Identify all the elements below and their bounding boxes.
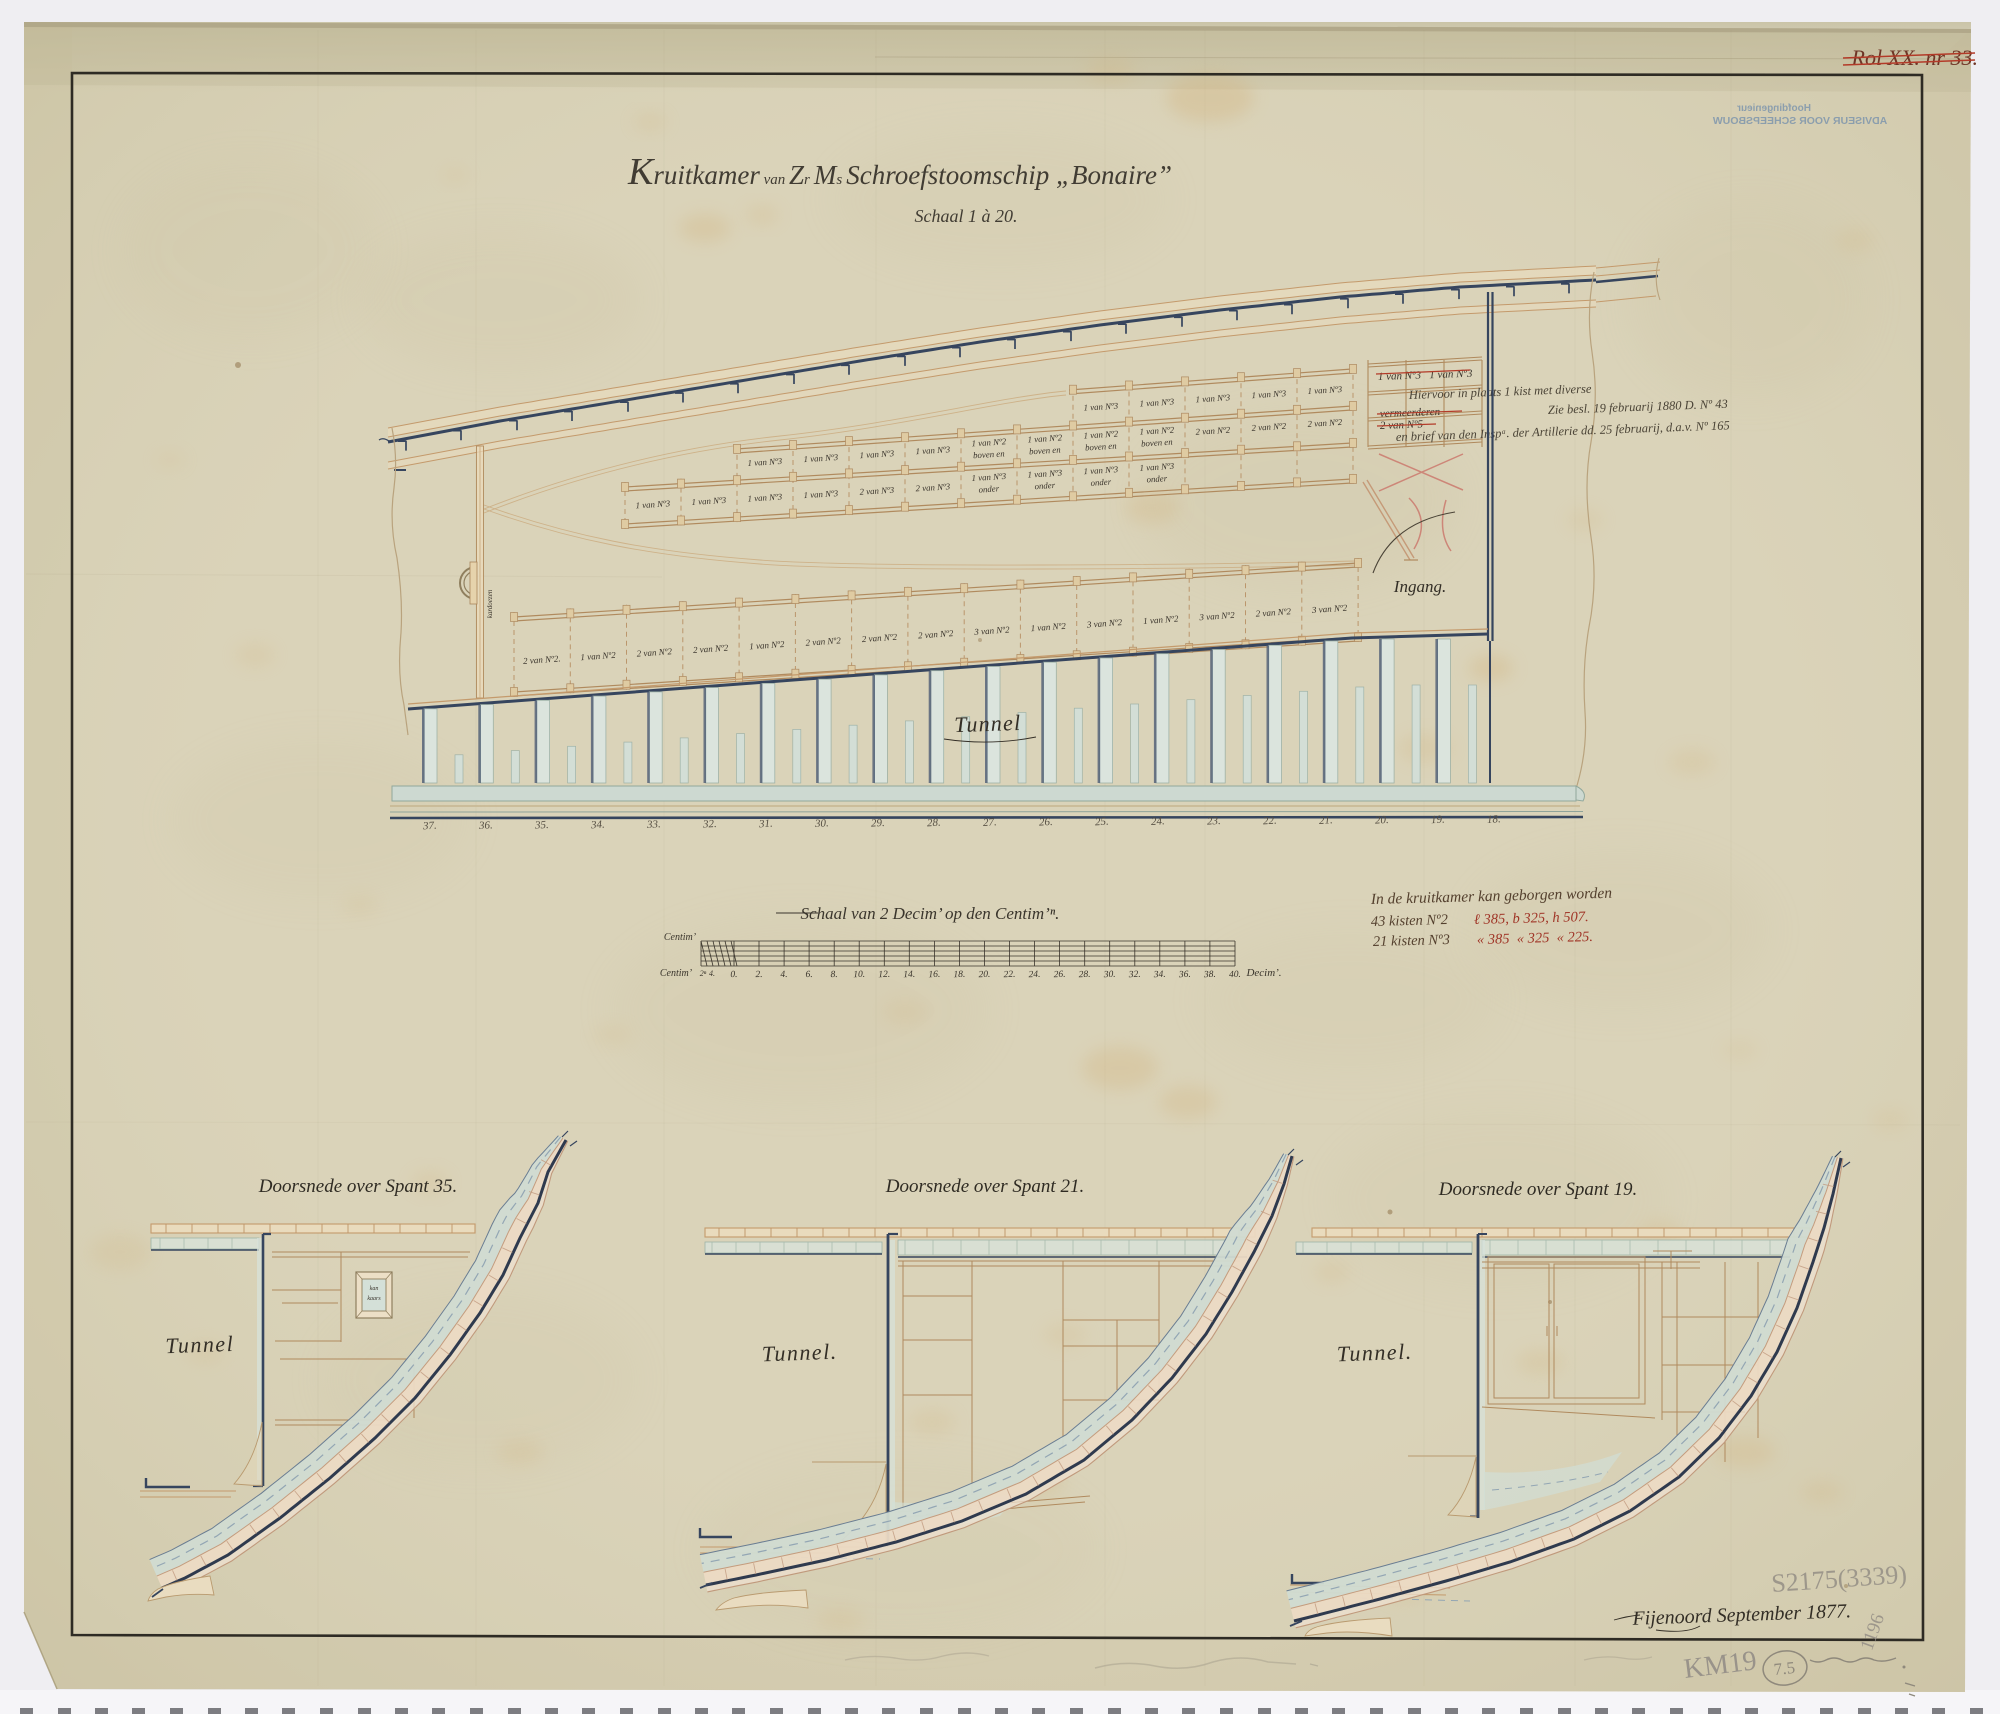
svg-text:boven en: boven en: [973, 448, 1006, 460]
svg-text:8.: 8.: [830, 970, 837, 980]
svg-text:1 van Nº3: 1 van Nº3: [635, 498, 671, 510]
svg-text:24.: 24.: [1028, 970, 1040, 980]
svg-text:16.: 16.: [928, 970, 940, 980]
svg-text:32.: 32.: [702, 818, 717, 831]
svg-text:29.: 29.: [871, 817, 885, 830]
svg-text:1 van Nº3: 1 van Nº3: [747, 456, 783, 468]
svg-text:Tunnel.: Tunnel.: [761, 1339, 838, 1367]
svg-text:Centim’: Centim’: [664, 932, 697, 943]
svg-text:1 van Nº3: 1 van Nº3: [1027, 468, 1063, 480]
svg-text:12.: 12.: [878, 970, 890, 980]
svg-text:22.: 22.: [1263, 815, 1277, 828]
svg-text:37.: 37.: [422, 820, 437, 833]
svg-text:1 van Nº3: 1 van Nº3: [1083, 464, 1119, 476]
svg-text:Schaal 1 à 20.: Schaal 1 à 20.: [915, 206, 1018, 226]
svg-text:boven en: boven en: [1141, 437, 1174, 449]
svg-text:1 van Nº2: 1 van Nº2: [1083, 428, 1119, 440]
svg-text:1 van Nº2: 1 van Nº2: [971, 436, 1007, 448]
svg-text:7.5: 7.5: [1773, 1658, 1796, 1679]
svg-text:34.: 34.: [590, 819, 605, 832]
svg-text:32.: 32.: [1128, 970, 1141, 980]
svg-text:onder: onder: [1034, 480, 1056, 491]
svg-text:Tunnel.: Tunnel.: [1336, 1339, 1413, 1367]
svg-text:2 van Nº2: 2 van Nº2: [1195, 425, 1231, 437]
svg-text:1 van Nº3: 1 van Nº3: [1139, 396, 1175, 408]
svg-text:Doorsnede over Spant 19.: Doorsnede over Spant 19.: [1438, 1179, 1637, 1200]
svg-text:1 van Nº3: 1 van Nº3: [1307, 384, 1343, 396]
svg-text:ℓ 385, b 325, h 507.: ℓ 385, b 325, h 507.: [1474, 909, 1589, 928]
svg-text:Doorsnede over Spant 35.: Doorsnede over Spant 35.: [258, 1176, 457, 1197]
svg-text:36.: 36.: [1178, 970, 1191, 980]
svg-text:kardoezen: kardoezen: [486, 589, 494, 618]
svg-text:20.: 20.: [1375, 814, 1389, 827]
svg-text:28.: 28.: [927, 817, 941, 830]
svg-text:38.: 38.: [1203, 970, 1216, 980]
svg-text:« 385 « 325 « 225.: « 385 « 325 « 225.: [1477, 929, 1593, 948]
svg-text:Hoofdingenieur: Hoofdingenieur: [1737, 103, 1811, 114]
svg-text:1 van Nº2: 1 van Nº2: [1027, 432, 1063, 444]
svg-text:1 van Nº3: 1 van Nº3: [1083, 401, 1119, 413]
svg-text:28.: 28.: [1079, 970, 1091, 980]
svg-text:43 kisten Nº2: 43 kisten Nº2: [1371, 912, 1448, 930]
svg-text:14.: 14.: [903, 970, 915, 980]
svg-text:onder: onder: [1090, 477, 1112, 488]
svg-text:Schaal van 2 Decim’ op den Cen: Schaal van 2 Decim’ op den Centim’ⁿ.: [801, 904, 1060, 923]
svg-text:24.: 24.: [1151, 815, 1165, 828]
svg-text:1 van Nº3: 1 van Nº3: [691, 495, 727, 507]
svg-text:boven en: boven en: [1029, 444, 1062, 456]
svg-text:26.: 26.: [1053, 970, 1065, 980]
svg-text:40.: 40.: [1229, 970, 1241, 980]
svg-text:10.: 10.: [853, 970, 865, 980]
svg-text:1 van Nº3: 1 van Nº3: [1139, 461, 1175, 473]
svg-text:Doorsnede over Spant 21.: Doorsnede over Spant 21.: [885, 1176, 1084, 1197]
svg-text:35.: 35.: [534, 819, 549, 832]
svg-text:kaars: kaars: [367, 1296, 381, 1302]
svg-text:6.: 6.: [805, 970, 812, 980]
svg-text:23.: 23.: [1207, 815, 1221, 828]
svg-text:4.: 4.: [709, 969, 715, 978]
svg-text:2.: 2.: [755, 970, 762, 980]
svg-text:1 van Nº2: 1 van Nº2: [1139, 425, 1175, 437]
svg-text:1 van Nº3: 1 van Nº3: [1251, 388, 1287, 400]
svg-text:0.: 0.: [730, 970, 737, 980]
svg-text:ADVISEUR VOOR SCHEEPSBOUW: ADVISEUR VOOR SCHEEPSBOUW: [1713, 115, 1888, 127]
svg-text:19.: 19.: [1431, 814, 1445, 827]
svg-text:30.: 30.: [814, 817, 829, 830]
svg-text:boven en: boven en: [1085, 441, 1118, 453]
svg-text:onder: onder: [978, 483, 1000, 494]
svg-text:Centim’: Centim’: [660, 968, 693, 979]
svg-text:25.: 25.: [1095, 816, 1109, 829]
svg-text:18.: 18.: [1487, 813, 1501, 826]
svg-text:31.: 31.: [758, 818, 773, 831]
svg-text:22.: 22.: [1003, 970, 1015, 980]
svg-text:2 van Nº2: 2 van Nº2: [1251, 421, 1287, 433]
svg-text:1 van Nº3: 1 van Nº3: [859, 448, 895, 460]
svg-text:2 van Nº3: 2 van Nº3: [859, 485, 895, 497]
svg-text:onder: onder: [1146, 473, 1168, 484]
svg-text:2 van Nº2: 2 van Nº2: [1307, 417, 1343, 429]
svg-text:2ⁿ: 2ⁿ: [700, 969, 707, 978]
svg-text:4.: 4.: [780, 970, 787, 980]
svg-text:1 van Nº3: 1 van Nº3: [971, 471, 1007, 483]
svg-text:1 van Nº3: 1 van Nº3: [915, 444, 951, 456]
svg-text:34.: 34.: [1153, 970, 1166, 980]
svg-text:2 van Nº3: 2 van Nº3: [915, 481, 951, 493]
svg-text:kan: kan: [370, 1286, 379, 1292]
svg-text:Decim’.: Decim’.: [1245, 967, 1281, 979]
svg-text:30.: 30.: [1103, 970, 1116, 980]
svg-text:33.: 33.: [646, 818, 661, 831]
svg-text:1 van Nº3: 1 van Nº3: [747, 491, 783, 503]
svg-text:1 van Nº3: 1 van Nº3: [803, 488, 839, 500]
svg-text:20.: 20.: [978, 970, 990, 980]
svg-text:27.: 27.: [983, 816, 997, 829]
svg-text:26.: 26.: [1039, 816, 1053, 829]
svg-text:1 van Nº3: 1 van Nº3: [1195, 392, 1231, 404]
svg-text:36.: 36.: [478, 819, 493, 832]
svg-text:Ingang.: Ingang.: [1393, 577, 1446, 596]
svg-text:18.: 18.: [953, 970, 965, 980]
svg-text:1 van Nº3: 1 van Nº3: [803, 452, 839, 464]
svg-text:21.: 21.: [1319, 814, 1333, 827]
svg-text:Tunnel: Tunnel: [165, 1331, 235, 1358]
svg-text:Tunnel: Tunnel: [954, 710, 1022, 737]
svg-text:21 kisten Nº3: 21 kisten Nº3: [1373, 932, 1450, 950]
